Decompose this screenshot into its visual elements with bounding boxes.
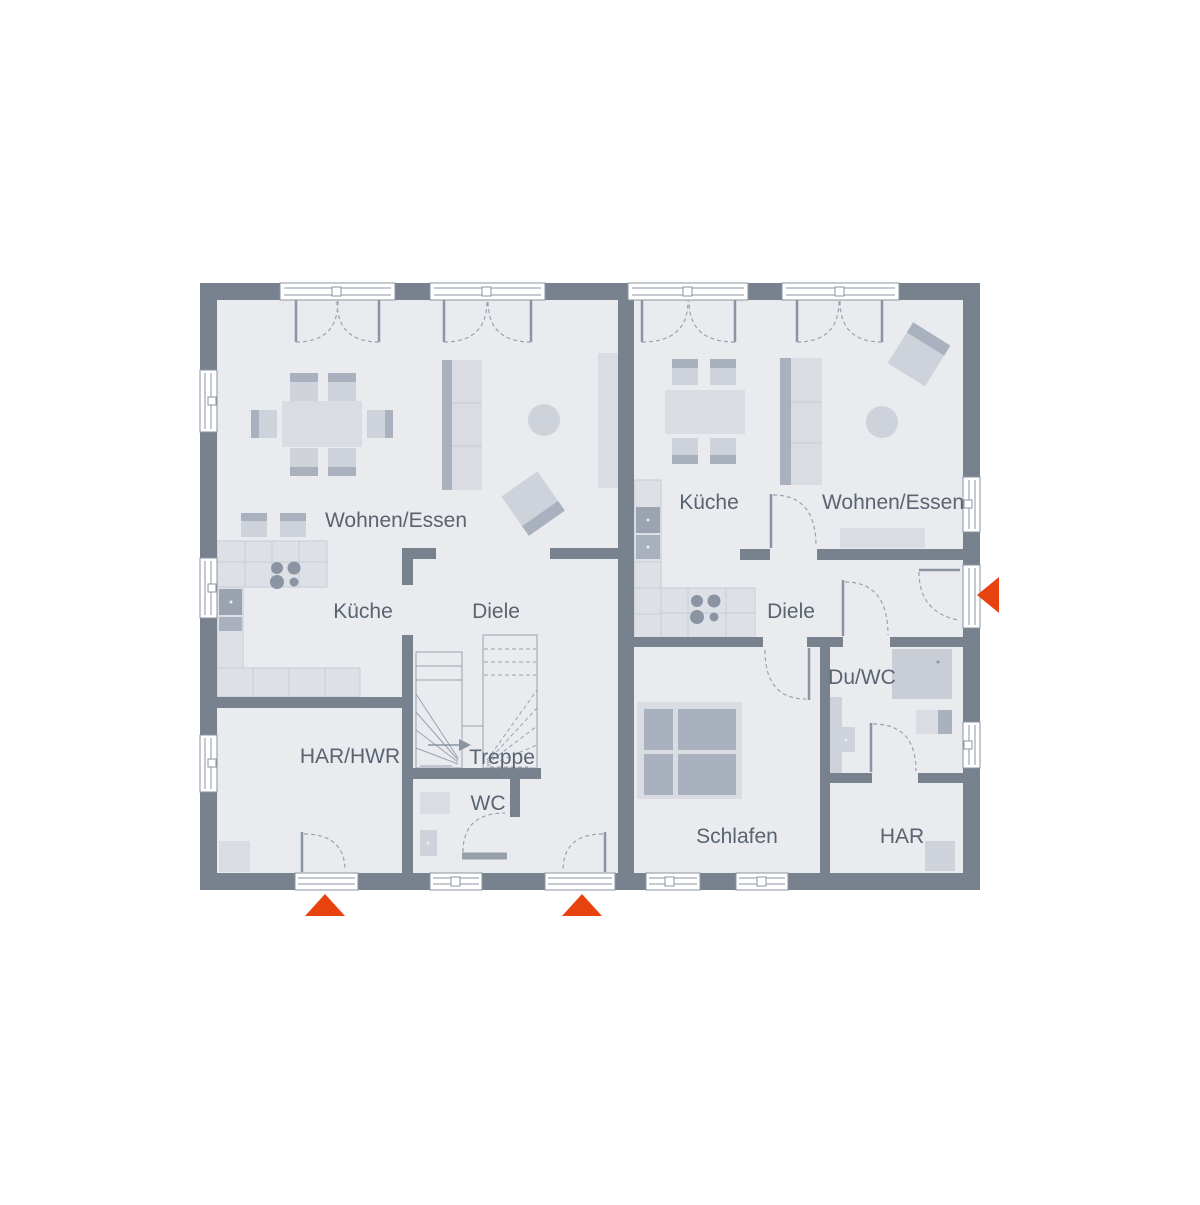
shower xyxy=(892,649,952,699)
window xyxy=(963,477,980,532)
room-label-har: HAR xyxy=(880,825,924,848)
window xyxy=(200,370,217,432)
sideboard-left xyxy=(598,353,618,488)
room-label-diele-left: Diele xyxy=(472,600,520,623)
entrance-door-frame-har-hwr xyxy=(295,873,358,890)
window xyxy=(200,558,217,618)
pillow xyxy=(644,709,673,750)
window xyxy=(646,873,700,890)
appliance-left xyxy=(219,617,242,631)
french-door-frame xyxy=(782,283,899,300)
shelf-right xyxy=(780,358,822,485)
room-label-kueche-left: Küche xyxy=(333,600,393,623)
plant-left xyxy=(528,404,560,436)
cabinet-har xyxy=(925,841,955,871)
bed-schlafen xyxy=(637,702,742,799)
entrance-arrow-icon xyxy=(305,894,345,916)
plant-right xyxy=(866,406,898,438)
room-label-diele-right: Diele xyxy=(767,600,815,623)
mattress xyxy=(678,754,736,795)
floorplan-page: Wohnen/Essen Küche Diele HAR/HWR Treppe … xyxy=(0,0,1200,1200)
entrance-door-frame-left xyxy=(545,873,615,890)
room-label-schlafen: Schlafen xyxy=(696,825,778,848)
room-label-wohnen-essen-left: Wohnen/Essen xyxy=(325,509,467,532)
sideboard-right xyxy=(840,528,925,548)
room-label-kueche-right: Küche xyxy=(679,491,739,514)
entrance-arrow-icon xyxy=(562,894,602,916)
window xyxy=(963,722,980,768)
washbasin-du-wc xyxy=(916,710,938,734)
room-label-du-wc: Du/WC xyxy=(828,666,896,689)
floorplan-drawing: Wohnen/Essen Küche Diele HAR/HWR Treppe … xyxy=(0,0,1200,1200)
window xyxy=(736,873,788,890)
shelf-left xyxy=(442,360,482,490)
dining-table-left xyxy=(282,401,362,447)
french-door-frame xyxy=(430,283,545,300)
room-label-wohnen-essen-right: Wohnen/Essen xyxy=(822,491,964,514)
washer-har-hwr xyxy=(219,841,250,872)
window xyxy=(430,873,482,890)
window xyxy=(200,735,217,792)
room-label-har-hwr: HAR/HWR xyxy=(300,745,400,768)
french-door-frame xyxy=(280,283,395,300)
room-label-wc: WC xyxy=(471,792,506,815)
entrance-door-frame-right xyxy=(963,565,980,628)
dining-table-right xyxy=(665,390,745,434)
party-wall xyxy=(618,283,634,890)
washbasin-wc-left xyxy=(420,792,450,814)
room-label-treppe: Treppe xyxy=(469,746,535,769)
french-door-frame xyxy=(628,283,748,300)
mattress xyxy=(678,709,736,750)
pillow xyxy=(644,754,673,795)
